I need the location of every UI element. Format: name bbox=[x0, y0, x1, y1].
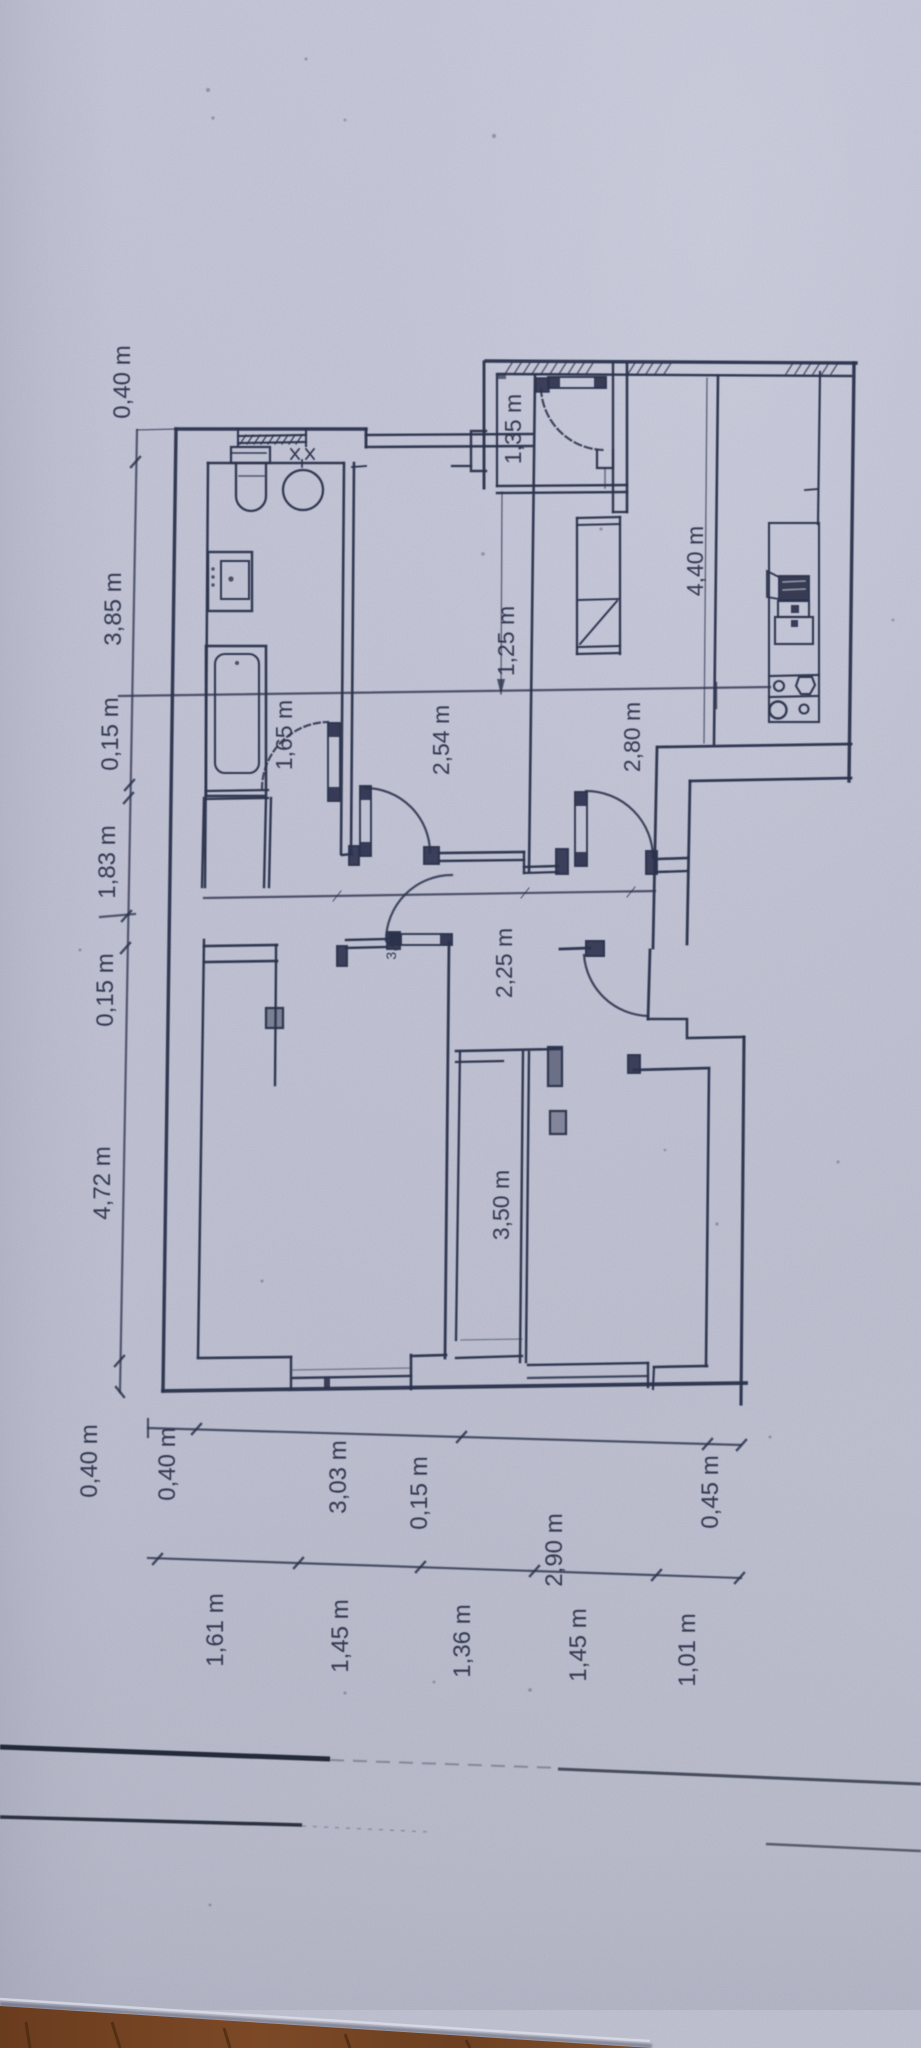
svg-text:1,61 m: 1,61 m bbox=[202, 1593, 229, 1666]
svg-text:0,45 m: 0,45 m bbox=[697, 1455, 724, 1528]
svg-text:1,36 m: 1,36 m bbox=[449, 1604, 476, 1677]
svg-text:1,35 m: 1,35 m bbox=[500, 394, 526, 464]
svg-text:1,45 m: 1,45 m bbox=[327, 1599, 354, 1672]
svg-text:4,72 m: 4,72 m bbox=[89, 1146, 116, 1219]
svg-text:3,85 m: 3,85 m bbox=[100, 572, 127, 645]
svg-text:2,54 m: 2,54 m bbox=[428, 705, 454, 775]
svg-text:0,40 m: 0,40 m bbox=[109, 345, 136, 418]
svg-text:1,45 m: 1,45 m bbox=[565, 1608, 592, 1681]
svg-text:3,50 m: 3,50 m bbox=[488, 1170, 514, 1240]
svg-text:1,01 m: 1,01 m bbox=[674, 1613, 701, 1686]
svg-text:2,25 m: 2,25 m bbox=[491, 928, 517, 998]
svg-text:1,83 m: 1,83 m bbox=[94, 825, 121, 898]
svg-text:2,80 m: 2,80 m bbox=[619, 702, 645, 772]
svg-text:0,15 m: 0,15 m bbox=[97, 697, 124, 770]
svg-text:0,15 m: 0,15 m bbox=[92, 953, 119, 1026]
svg-text:1,25 m: 1,25 m bbox=[493, 606, 519, 676]
svg-text:3,03 m: 3,03 m bbox=[325, 1440, 352, 1513]
svg-text:0,40 m: 0,40 m bbox=[154, 1427, 181, 1500]
svg-text:1,65 m: 1,65 m bbox=[271, 700, 297, 770]
svg-text:2,90 m: 2,90 m bbox=[541, 1513, 568, 1586]
svg-text:0,40 m: 0,40 m bbox=[76, 1424, 103, 1497]
svg-text:0,15 m: 0,15 m bbox=[406, 1456, 433, 1529]
svg-text:4,40 m: 4,40 m bbox=[682, 526, 708, 596]
